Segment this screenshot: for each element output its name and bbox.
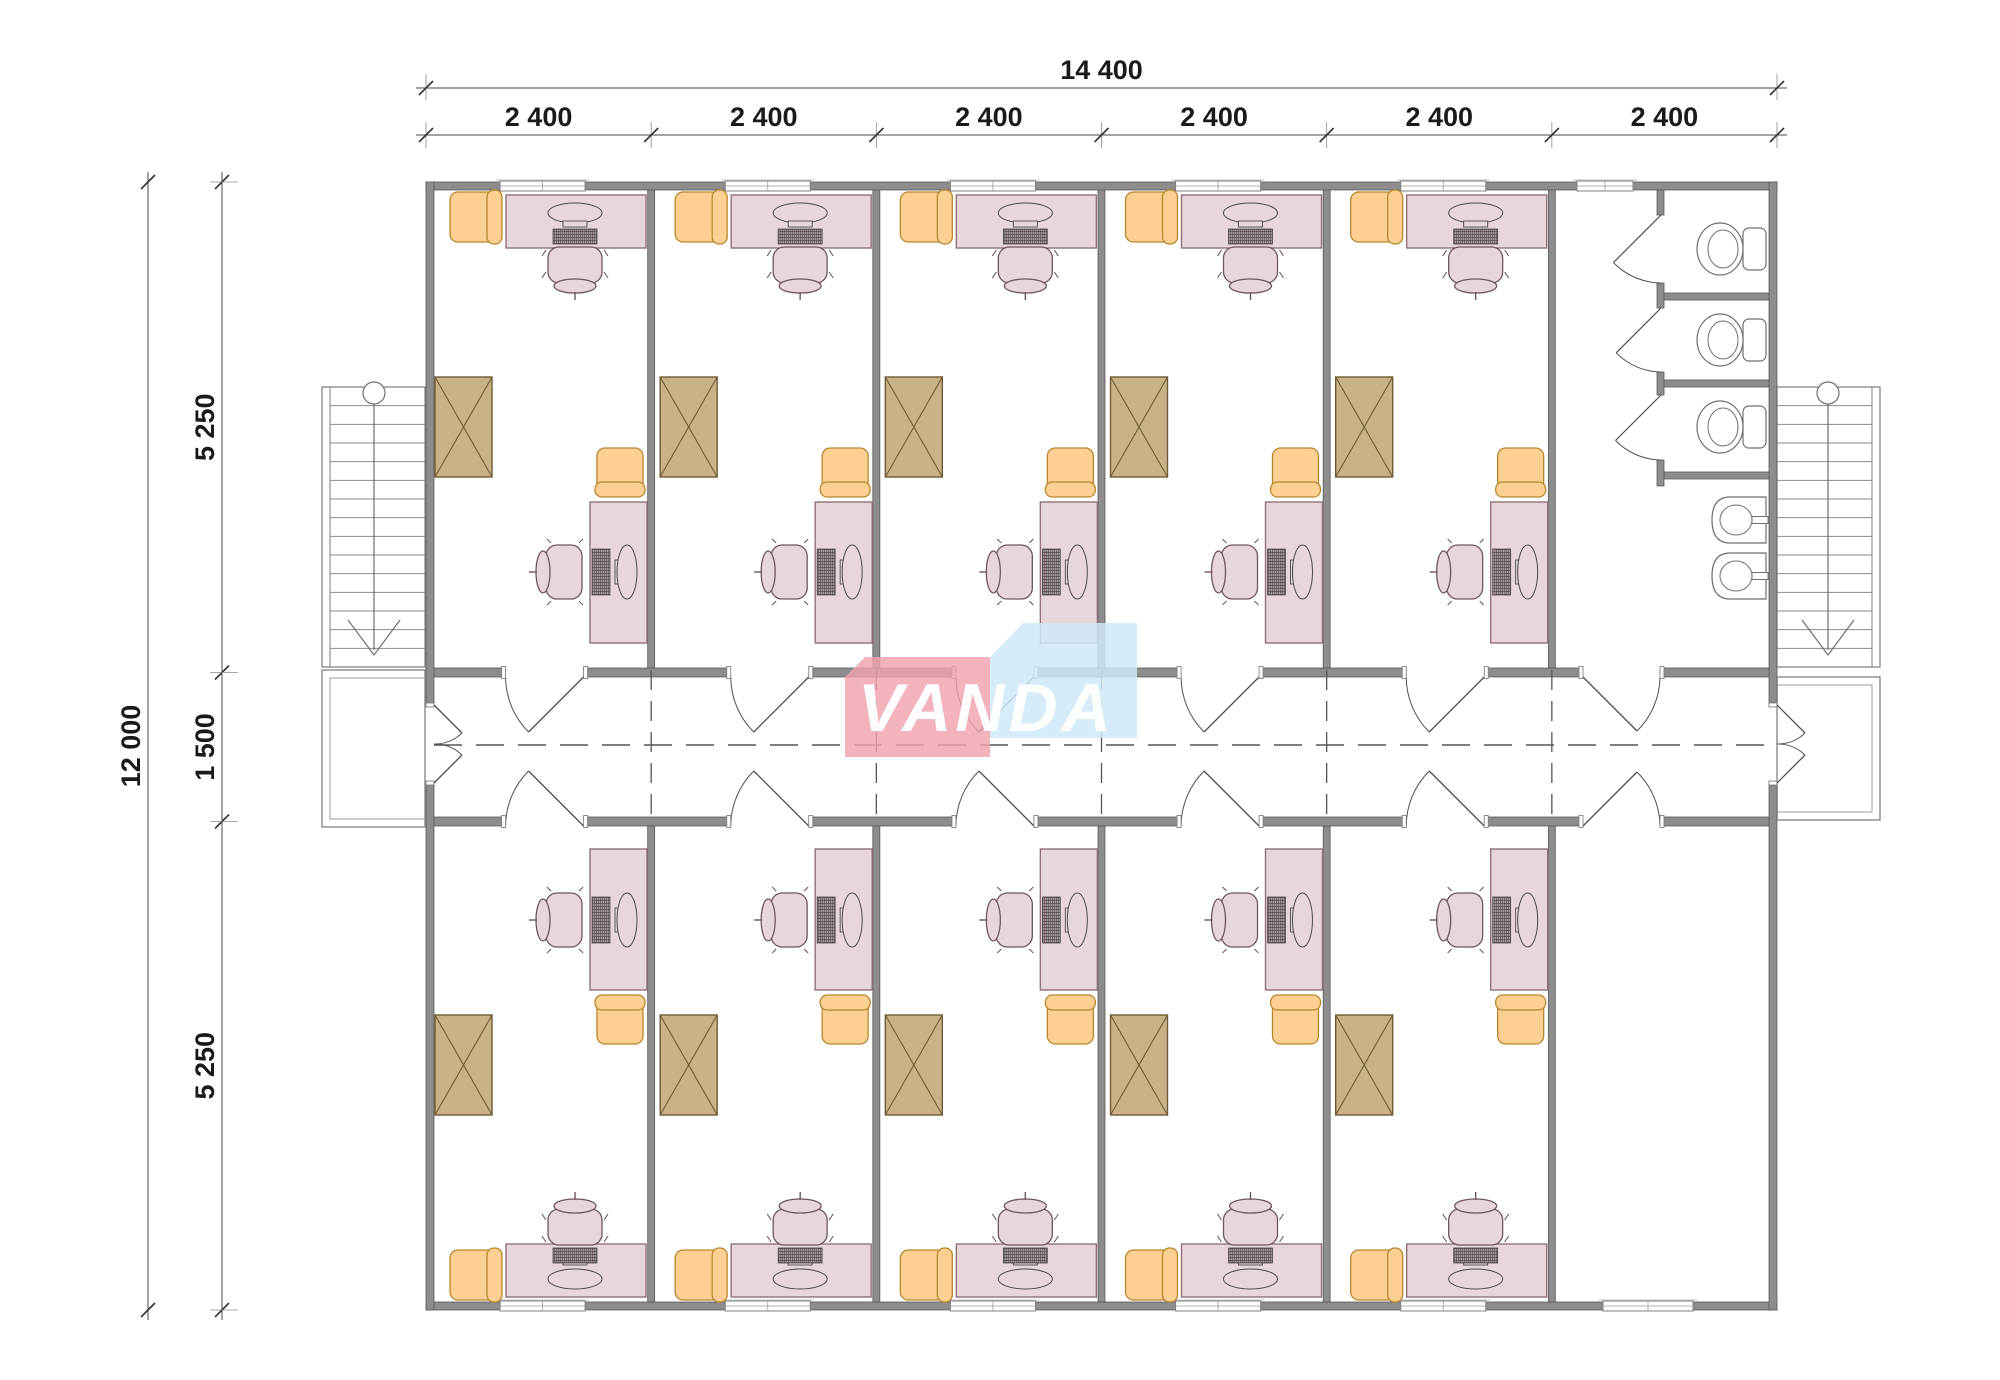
toilet-icon xyxy=(1697,401,1766,453)
plan-root: VANDA14 4002 4002 4002 4002 4002 4002 40… xyxy=(0,0,2000,1380)
stall-stub-3 xyxy=(1657,460,1664,486)
chair-back xyxy=(554,279,596,293)
wall-partition-top-1 xyxy=(648,190,655,668)
sink-faucet xyxy=(1752,517,1768,524)
door-jamb xyxy=(1660,667,1664,679)
chair-body xyxy=(1222,893,1258,947)
dim-label-segment: 5 250 xyxy=(190,393,220,461)
keyboard xyxy=(1268,549,1286,595)
armchair-back xyxy=(595,482,645,497)
armchair-icon xyxy=(1045,448,1095,497)
armchair-back xyxy=(820,995,870,1010)
chair-back xyxy=(536,899,550,941)
window xyxy=(721,1300,814,1311)
armchair-icon xyxy=(450,190,502,244)
toilet-icon xyxy=(1697,314,1766,366)
sink-bowl xyxy=(1720,561,1752,591)
armchair-back xyxy=(1163,1248,1178,1302)
armchair-icon xyxy=(595,995,645,1044)
chair-back xyxy=(986,899,1000,941)
keyboard xyxy=(1003,1248,1047,1263)
door-jamb xyxy=(1177,816,1181,828)
door-jamb xyxy=(809,816,813,828)
armchair-icon xyxy=(675,190,727,244)
door-jamb xyxy=(426,703,434,707)
armchair-back xyxy=(1271,482,1321,497)
keyboard xyxy=(1454,1248,1498,1263)
monitor-base xyxy=(1013,221,1037,227)
armchair-icon xyxy=(595,448,645,497)
door-jamb xyxy=(1402,667,1406,679)
sink-bowl xyxy=(1720,505,1752,535)
keyboard xyxy=(778,1248,822,1263)
armchair-back xyxy=(487,190,502,244)
monitor xyxy=(1224,203,1278,223)
chair-back xyxy=(1212,551,1226,593)
landing-left xyxy=(322,670,425,827)
chair-body xyxy=(773,247,827,283)
wall-stall-1 xyxy=(1664,293,1769,300)
window xyxy=(1172,180,1265,191)
armchair-icon xyxy=(1351,190,1403,244)
toilet-seat xyxy=(1708,321,1738,359)
door-jamb xyxy=(727,816,731,828)
window xyxy=(496,1300,589,1311)
chair-body xyxy=(998,247,1052,283)
keyboard xyxy=(1229,1248,1273,1263)
armchair-back xyxy=(487,1248,502,1302)
armchair-back xyxy=(595,995,645,1010)
door-jamb xyxy=(1484,816,1488,828)
sink-faucet xyxy=(1752,573,1768,580)
armchair-icon xyxy=(1045,995,1095,1044)
wall-corridor-bottom xyxy=(434,817,1769,826)
cabinet-icon xyxy=(1111,377,1168,477)
door-jamb xyxy=(1769,781,1777,785)
wall-partition-top-3 xyxy=(1098,190,1105,668)
cabinet-icon xyxy=(435,377,492,477)
armchair-back xyxy=(937,1248,952,1302)
wall-partition-bottom-5 xyxy=(1548,826,1555,1302)
door-opening xyxy=(506,666,584,679)
chair-body xyxy=(996,893,1032,947)
keyboard xyxy=(1042,897,1060,943)
monitor xyxy=(1293,545,1313,599)
door-jamb xyxy=(502,816,506,828)
armchair-icon xyxy=(820,995,870,1044)
chair-back xyxy=(1455,279,1497,293)
dim-label-bay: 2 400 xyxy=(730,102,798,132)
door-jamb xyxy=(426,781,434,785)
wall-partition-bottom-4 xyxy=(1323,826,1330,1302)
monitor-base xyxy=(563,221,587,227)
chair-back xyxy=(1230,279,1272,293)
toilet-seat xyxy=(1708,230,1738,268)
armchair-back xyxy=(937,190,952,244)
wall-partition-bottom-3 xyxy=(1098,826,1105,1302)
chair-body xyxy=(548,1209,602,1245)
armchair-back xyxy=(820,482,870,497)
keyboard xyxy=(817,549,835,595)
armchair-icon xyxy=(1496,995,1546,1044)
wall-partition-top-4 xyxy=(1323,190,1330,668)
chair-back xyxy=(1004,279,1046,293)
window xyxy=(1599,1300,1697,1311)
chair-back xyxy=(779,279,821,293)
cabinet-icon xyxy=(885,1015,942,1115)
monitor xyxy=(1518,893,1538,947)
chair-body xyxy=(1222,545,1258,599)
toilet-tank xyxy=(1743,228,1766,270)
chair-body xyxy=(1447,545,1483,599)
window xyxy=(721,180,814,191)
door-jamb xyxy=(1259,816,1263,828)
monitor xyxy=(998,1269,1052,1289)
door-jamb xyxy=(1579,667,1583,679)
toilet-seat xyxy=(1708,408,1738,446)
landing-right xyxy=(1777,677,1880,820)
armchair-back xyxy=(1163,190,1178,244)
door-jamb xyxy=(1034,816,1038,828)
monitor-base xyxy=(1464,221,1488,227)
monitor-base xyxy=(1239,221,1263,227)
door-jamb xyxy=(1660,816,1664,828)
keyboard xyxy=(553,1248,597,1263)
chair-body xyxy=(1449,1209,1503,1245)
armchair-icon xyxy=(900,190,952,244)
armchair-icon xyxy=(1126,190,1178,244)
sink-icon xyxy=(1712,553,1768,599)
keyboard xyxy=(1493,549,1511,595)
armchair-icon xyxy=(1496,448,1546,497)
door-jamb xyxy=(1402,816,1406,828)
chair-back xyxy=(1437,899,1451,941)
dim-label-bay: 2 400 xyxy=(1405,102,1473,132)
armchair-back xyxy=(1045,482,1095,497)
door-jamb xyxy=(1484,667,1488,679)
chair-body xyxy=(1447,893,1483,947)
window xyxy=(946,180,1039,191)
chair-back xyxy=(554,1199,596,1213)
window xyxy=(1573,180,1637,191)
door-jamb xyxy=(584,816,588,828)
keyboard xyxy=(1229,229,1273,244)
keyboard xyxy=(592,549,610,595)
wall-exterior-bottom xyxy=(426,1302,1777,1310)
dim-label-bay: 2 400 xyxy=(1631,102,1699,132)
door-jamb xyxy=(727,667,731,679)
stall-stub-2 xyxy=(1657,372,1664,395)
monitor xyxy=(1449,203,1503,223)
door-opening xyxy=(1583,815,1660,828)
door-opening xyxy=(1406,666,1484,679)
keyboard xyxy=(1454,229,1498,244)
armchair-back xyxy=(1388,190,1403,244)
wall-stall-2 xyxy=(1664,380,1769,387)
keyboard xyxy=(1042,549,1060,595)
armchair-icon xyxy=(820,448,870,497)
window xyxy=(496,180,589,191)
chair-back xyxy=(1230,1199,1272,1213)
window xyxy=(1397,1300,1490,1311)
chair-back xyxy=(1212,899,1226,941)
monitor xyxy=(1449,1269,1503,1289)
monitor xyxy=(773,203,827,223)
monitor xyxy=(842,893,862,947)
toilet-icon xyxy=(1697,223,1766,275)
cabinet-icon xyxy=(660,1015,717,1115)
door-opening xyxy=(731,666,809,679)
keyboard xyxy=(1003,229,1047,244)
armchair-back xyxy=(1496,995,1546,1010)
keyboard xyxy=(1493,897,1511,943)
armchair-icon xyxy=(675,1248,727,1302)
stairs-right xyxy=(1777,382,1880,667)
armchair-back xyxy=(1045,995,1095,1010)
monitor xyxy=(548,203,602,223)
monitor-base xyxy=(788,221,812,227)
armchair-icon xyxy=(450,1248,502,1302)
monitor xyxy=(998,203,1052,223)
monitor xyxy=(548,1269,602,1289)
monitor xyxy=(1067,893,1087,947)
cabinet-icon xyxy=(885,377,942,477)
wall-partition-bottom-1 xyxy=(648,826,655,1302)
chair-body xyxy=(771,545,807,599)
stall-stub-1 xyxy=(1657,283,1664,308)
armchair-back xyxy=(712,190,727,244)
keyboard xyxy=(553,229,597,244)
wall-exterior-top xyxy=(426,182,1777,190)
door-jamb xyxy=(1769,703,1777,707)
dim-label-bay: 2 400 xyxy=(505,102,573,132)
door-opening xyxy=(1181,666,1259,679)
cabinet-icon xyxy=(1336,1015,1393,1115)
monitor xyxy=(617,893,637,947)
chair-body xyxy=(996,545,1032,599)
chair-back xyxy=(761,899,775,941)
toilet-tank xyxy=(1743,406,1766,448)
stairs-left xyxy=(322,382,425,667)
stair-start-circle xyxy=(363,382,385,404)
dim-label-segment: 5 250 xyxy=(190,1032,220,1100)
stair-start-circle xyxy=(1817,382,1839,404)
landing-outline xyxy=(322,670,425,827)
chair-back xyxy=(1437,551,1451,593)
door-opening xyxy=(506,815,584,828)
armchair-icon xyxy=(1271,448,1321,497)
monitor xyxy=(773,1269,827,1289)
chair-back xyxy=(986,551,1000,593)
monitor xyxy=(1067,545,1087,599)
door-opening xyxy=(1181,815,1259,828)
door-jamb xyxy=(1579,816,1583,828)
wall-partition-top-2 xyxy=(873,190,880,668)
wall-exterior-left-upper xyxy=(426,182,434,705)
chair-body xyxy=(1449,247,1503,283)
armchair-back xyxy=(1271,995,1321,1010)
chair-body xyxy=(1224,247,1278,283)
dim-label-total-width: 14 400 xyxy=(1060,55,1143,85)
chair-body xyxy=(546,893,582,947)
monitor xyxy=(1518,545,1538,599)
door-jamb xyxy=(1177,667,1181,679)
door-jamb xyxy=(1259,667,1263,679)
door-opening xyxy=(731,815,809,828)
chair-back xyxy=(536,551,550,593)
chair-back xyxy=(1004,1199,1046,1213)
chair-body xyxy=(773,1209,827,1245)
door-opening xyxy=(956,815,1034,828)
keyboard xyxy=(817,897,835,943)
sink-icon xyxy=(1712,497,1768,543)
dim-label-segment: 1 500 xyxy=(190,713,220,781)
armchair-back xyxy=(1388,1248,1403,1302)
keyboard xyxy=(1268,897,1286,943)
floor-plan-canvas: VANDA14 4002 4002 4002 4002 4002 4002 40… xyxy=(0,0,2000,1380)
door-jamb xyxy=(502,667,506,679)
door-jamb xyxy=(809,667,813,679)
cabinet-icon xyxy=(660,377,717,477)
armchair-icon xyxy=(1351,1248,1403,1302)
chair-body xyxy=(998,1209,1052,1245)
door-opening xyxy=(1583,666,1660,679)
chair-body xyxy=(1224,1209,1278,1245)
wall-partition-bottom-2 xyxy=(873,826,880,1302)
wall-stall-3 xyxy=(1664,472,1769,479)
monitor xyxy=(1224,1269,1278,1289)
armchair-icon xyxy=(1271,995,1321,1044)
dim-label-bay: 2 400 xyxy=(1180,102,1248,132)
door-jamb xyxy=(952,816,956,828)
armchair-back xyxy=(1496,482,1546,497)
chair-back xyxy=(1455,1199,1497,1213)
window xyxy=(946,1300,1039,1311)
chair-back xyxy=(761,551,775,593)
window xyxy=(1172,1300,1265,1311)
landing-outline xyxy=(1777,677,1880,820)
wall-partition-top-5 xyxy=(1548,190,1555,668)
window xyxy=(1397,180,1490,191)
chair-body xyxy=(771,893,807,947)
monitor xyxy=(617,545,637,599)
cabinet-icon xyxy=(1336,377,1393,477)
toilet-tank xyxy=(1743,319,1766,361)
floor-plan-drawing: VANDA14 4002 4002 4002 4002 4002 4002 40… xyxy=(0,0,2000,1380)
logo-text: VANDA xyxy=(858,670,1115,746)
chair-body xyxy=(546,545,582,599)
wall-exterior-right-upper xyxy=(1769,182,1777,705)
dim-label-total-height: 12 000 xyxy=(116,705,146,788)
stall-stub-0 xyxy=(1657,190,1664,215)
monitor xyxy=(1293,893,1313,947)
dim-label-bay: 2 400 xyxy=(955,102,1023,132)
keyboard xyxy=(592,897,610,943)
chair-back xyxy=(779,1199,821,1213)
door-opening xyxy=(1406,815,1484,828)
wall-exterior-left-lower xyxy=(426,783,434,1310)
armchair-icon xyxy=(1126,1248,1178,1302)
door-jamb xyxy=(584,667,588,679)
cabinet-icon xyxy=(435,1015,492,1115)
keyboard xyxy=(778,229,822,244)
wall-exterior-right-lower xyxy=(1769,783,1777,1310)
armchair-back xyxy=(712,1248,727,1302)
monitor xyxy=(842,545,862,599)
chair-body xyxy=(548,247,602,283)
armchair-icon xyxy=(900,1248,952,1302)
cabinet-icon xyxy=(1111,1015,1168,1115)
